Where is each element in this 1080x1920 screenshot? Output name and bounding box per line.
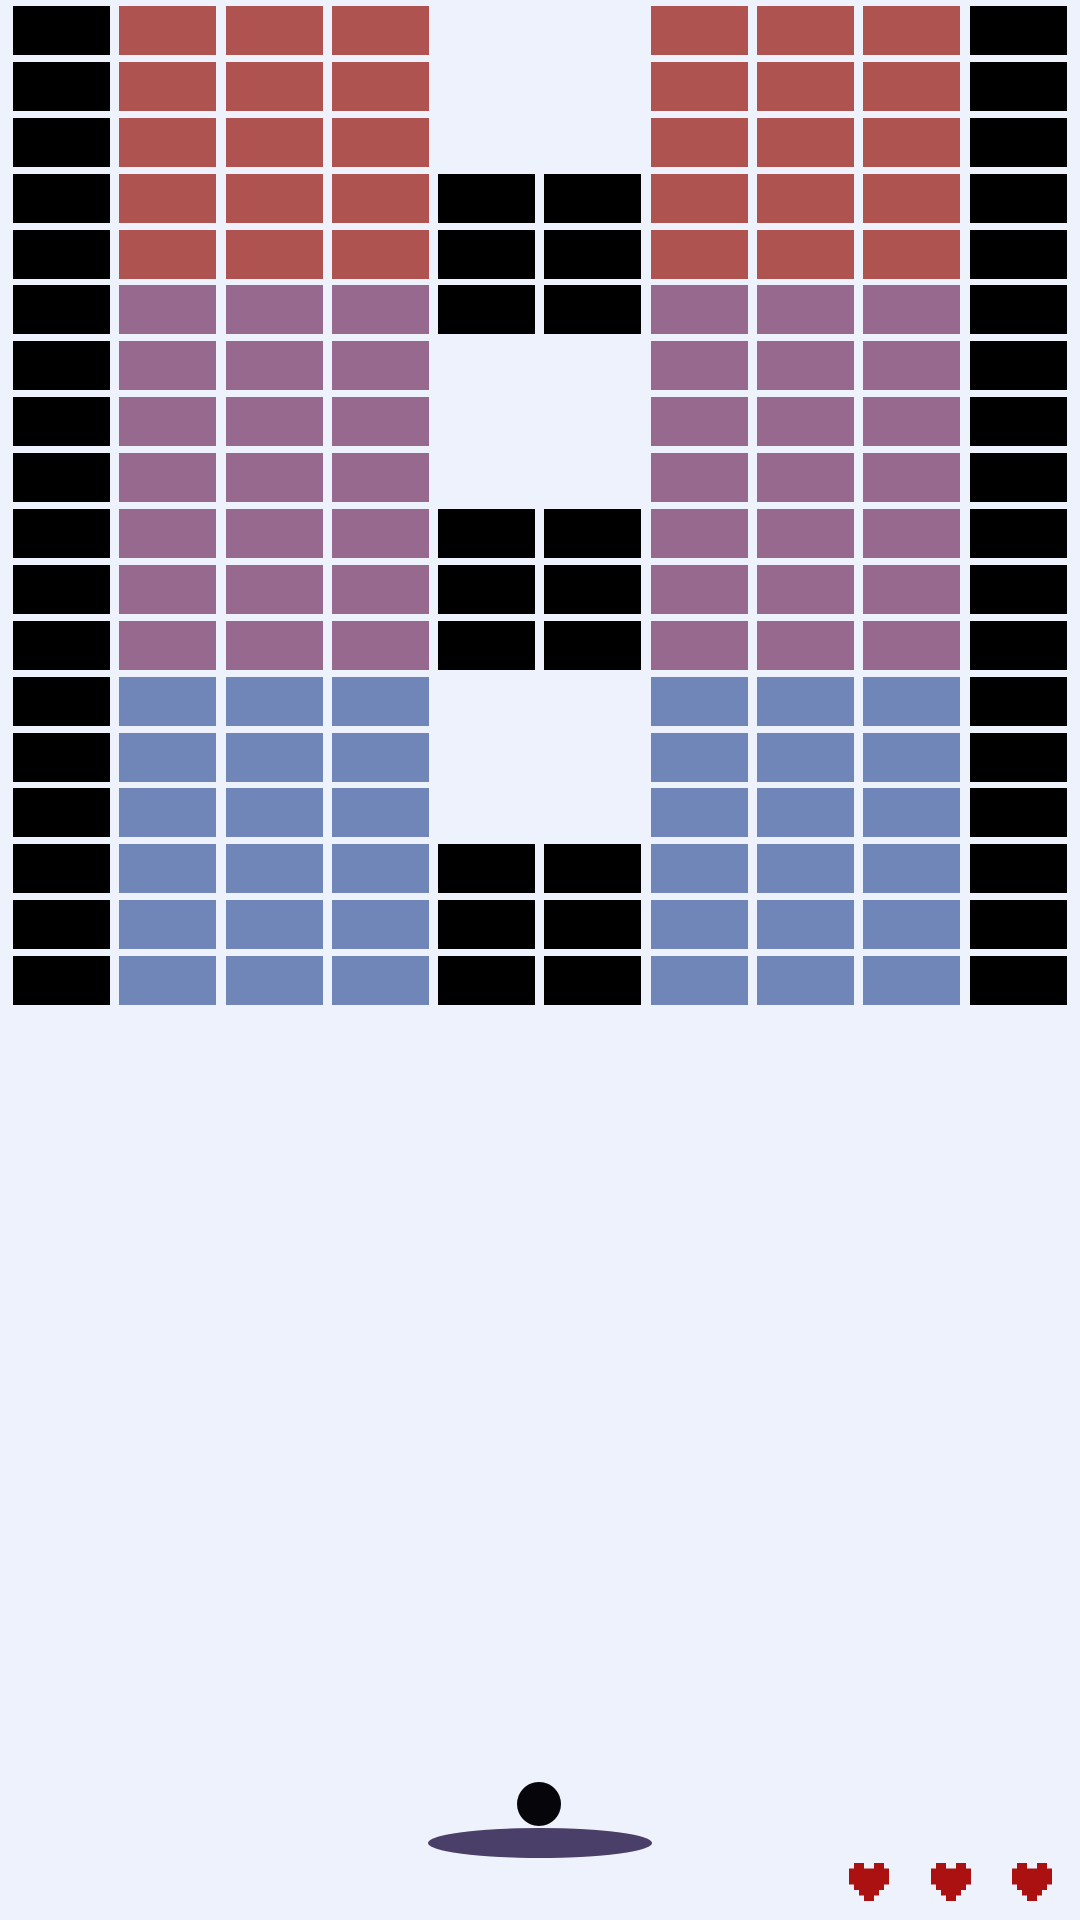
brick-blue	[332, 900, 429, 949]
heart-icon	[849, 1863, 889, 1901]
brick-red	[863, 118, 960, 167]
brick-black	[13, 230, 110, 279]
brick-purple	[651, 565, 748, 614]
brick-blue	[226, 900, 323, 949]
empty-cell	[438, 453, 535, 502]
brick-red	[226, 230, 323, 279]
brick-blue	[863, 677, 960, 726]
brick-black	[970, 285, 1067, 334]
brick-black	[438, 621, 535, 670]
brick-blue	[332, 844, 429, 893]
brick-blue	[226, 733, 323, 782]
brick-black	[13, 118, 110, 167]
brick-black	[13, 788, 110, 837]
brick-black	[970, 788, 1067, 837]
brick-purple	[651, 509, 748, 558]
brick-black	[970, 565, 1067, 614]
brick-blue	[863, 788, 960, 837]
brick-purple	[651, 397, 748, 446]
brick-purple	[757, 509, 854, 558]
brick-purple	[757, 621, 854, 670]
empty-cell	[544, 341, 641, 390]
brick-red	[651, 6, 748, 55]
brick-black	[970, 956, 1067, 1005]
brick-blue	[226, 788, 323, 837]
brick-black	[13, 677, 110, 726]
brick-blue	[332, 677, 429, 726]
brick-purple	[757, 565, 854, 614]
brick-red	[651, 62, 748, 111]
brick-red	[119, 62, 216, 111]
brick-blue	[651, 733, 748, 782]
brick-red	[757, 230, 854, 279]
brick-blue	[332, 956, 429, 1005]
brick-blue	[651, 844, 748, 893]
brick-black	[13, 565, 110, 614]
brick-black	[13, 62, 110, 111]
brick-purple	[863, 453, 960, 502]
heart-icon	[931, 1863, 971, 1901]
brick-black	[970, 677, 1067, 726]
brick-red	[226, 118, 323, 167]
empty-cell	[544, 788, 641, 837]
brick-purple	[757, 397, 854, 446]
brick-blue	[226, 956, 323, 1005]
brick-black	[544, 844, 641, 893]
brick-blue	[119, 956, 216, 1005]
brick-black	[13, 397, 110, 446]
empty-cell	[544, 62, 641, 111]
brick-red	[863, 62, 960, 111]
brick-black	[438, 230, 535, 279]
brick-black	[13, 733, 110, 782]
brick-blue	[226, 677, 323, 726]
brick-black	[970, 397, 1067, 446]
brick-black	[970, 453, 1067, 502]
brick-blue	[863, 844, 960, 893]
brick-purple	[119, 621, 216, 670]
brick-purple	[651, 285, 748, 334]
brick-red	[226, 6, 323, 55]
brick-blue	[119, 733, 216, 782]
brick-red	[757, 62, 854, 111]
brick-red	[332, 6, 429, 55]
brick-blue	[651, 677, 748, 726]
brick-black	[970, 900, 1067, 949]
brick-black	[970, 174, 1067, 223]
brick-blue	[119, 677, 216, 726]
brick-black	[544, 621, 641, 670]
brick-blue	[119, 844, 216, 893]
lives-indicator	[849, 1863, 1052, 1901]
brick-black	[970, 621, 1067, 670]
brick-black	[13, 174, 110, 223]
brick-purple	[119, 285, 216, 334]
brick-purple	[332, 621, 429, 670]
brick-black	[544, 174, 641, 223]
brick-black	[13, 453, 110, 502]
brick-purple	[757, 341, 854, 390]
brick-red	[332, 62, 429, 111]
brick-purple	[226, 509, 323, 558]
brick-purple	[332, 565, 429, 614]
brick-purple	[332, 453, 429, 502]
ball	[517, 1782, 561, 1826]
brick-purple	[651, 341, 748, 390]
brick-board	[13, 6, 1067, 1005]
empty-cell	[438, 733, 535, 782]
brick-blue	[863, 956, 960, 1005]
empty-cell	[544, 397, 641, 446]
brick-red	[332, 118, 429, 167]
brick-black	[970, 6, 1067, 55]
brick-black	[970, 733, 1067, 782]
brick-black	[438, 174, 535, 223]
brick-black	[970, 509, 1067, 558]
empty-cell	[438, 6, 535, 55]
brick-purple	[226, 397, 323, 446]
brick-black	[544, 230, 641, 279]
brick-purple	[863, 621, 960, 670]
brick-red	[119, 230, 216, 279]
brick-purple	[226, 453, 323, 502]
brick-red	[757, 6, 854, 55]
brick-red	[651, 174, 748, 223]
brick-black	[13, 341, 110, 390]
brick-black	[544, 956, 641, 1005]
paddle[interactable]	[428, 1828, 652, 1858]
brick-black	[544, 509, 641, 558]
game-screen	[0, 0, 1080, 1920]
brick-purple	[651, 453, 748, 502]
brick-red	[863, 6, 960, 55]
brick-purple	[863, 509, 960, 558]
brick-purple	[332, 397, 429, 446]
empty-cell	[438, 397, 535, 446]
brick-black	[438, 509, 535, 558]
brick-black	[13, 956, 110, 1005]
heart-icon	[1012, 1863, 1052, 1901]
brick-blue	[651, 788, 748, 837]
brick-blue	[757, 844, 854, 893]
brick-blue	[119, 788, 216, 837]
brick-blue	[226, 844, 323, 893]
brick-blue	[757, 677, 854, 726]
brick-red	[119, 174, 216, 223]
brick-purple	[863, 285, 960, 334]
brick-black	[970, 118, 1067, 167]
brick-purple	[119, 341, 216, 390]
brick-blue	[757, 733, 854, 782]
brick-red	[119, 118, 216, 167]
empty-cell	[438, 118, 535, 167]
brick-black	[970, 62, 1067, 111]
brick-black	[544, 900, 641, 949]
brick-blue	[332, 733, 429, 782]
empty-cell	[438, 677, 535, 726]
brick-purple	[863, 341, 960, 390]
brick-black	[438, 956, 535, 1005]
brick-purple	[119, 565, 216, 614]
brick-red	[757, 118, 854, 167]
brick-blue	[863, 900, 960, 949]
brick-black	[438, 285, 535, 334]
brick-red	[226, 174, 323, 223]
empty-cell	[544, 118, 641, 167]
brick-purple	[332, 509, 429, 558]
brick-black	[970, 844, 1067, 893]
brick-black	[13, 900, 110, 949]
brick-blue	[651, 900, 748, 949]
brick-blue	[332, 788, 429, 837]
empty-cell	[544, 6, 641, 55]
brick-red	[332, 230, 429, 279]
brick-black	[13, 285, 110, 334]
brick-black	[13, 621, 110, 670]
brick-purple	[332, 285, 429, 334]
brick-purple	[863, 397, 960, 446]
brick-red	[651, 118, 748, 167]
brick-red	[226, 62, 323, 111]
brick-purple	[757, 453, 854, 502]
brick-blue	[757, 788, 854, 837]
brick-purple	[119, 397, 216, 446]
brick-black	[438, 900, 535, 949]
brick-blue	[757, 956, 854, 1005]
brick-red	[863, 174, 960, 223]
empty-cell	[544, 677, 641, 726]
brick-red	[119, 6, 216, 55]
brick-purple	[119, 509, 216, 558]
brick-red	[757, 174, 854, 223]
brick-black	[13, 844, 110, 893]
brick-red	[651, 230, 748, 279]
brick-black	[13, 6, 110, 55]
empty-cell	[544, 453, 641, 502]
brick-purple	[332, 341, 429, 390]
brick-black	[438, 844, 535, 893]
empty-cell	[544, 733, 641, 782]
brick-blue	[863, 733, 960, 782]
empty-cell	[438, 788, 535, 837]
brick-blue	[757, 900, 854, 949]
empty-cell	[438, 341, 535, 390]
brick-black	[544, 565, 641, 614]
brick-black	[13, 509, 110, 558]
brick-black	[970, 341, 1067, 390]
brick-blue	[119, 900, 216, 949]
brick-red	[863, 230, 960, 279]
brick-black	[970, 230, 1067, 279]
brick-purple	[226, 565, 323, 614]
brick-purple	[651, 621, 748, 670]
empty-cell	[438, 62, 535, 111]
brick-purple	[863, 565, 960, 614]
brick-red	[332, 174, 429, 223]
brick-purple	[757, 285, 854, 334]
brick-black	[544, 285, 641, 334]
brick-purple	[119, 453, 216, 502]
brick-blue	[651, 956, 748, 1005]
brick-black	[438, 565, 535, 614]
brick-purple	[226, 341, 323, 390]
brick-purple	[226, 621, 323, 670]
brick-purple	[226, 285, 323, 334]
